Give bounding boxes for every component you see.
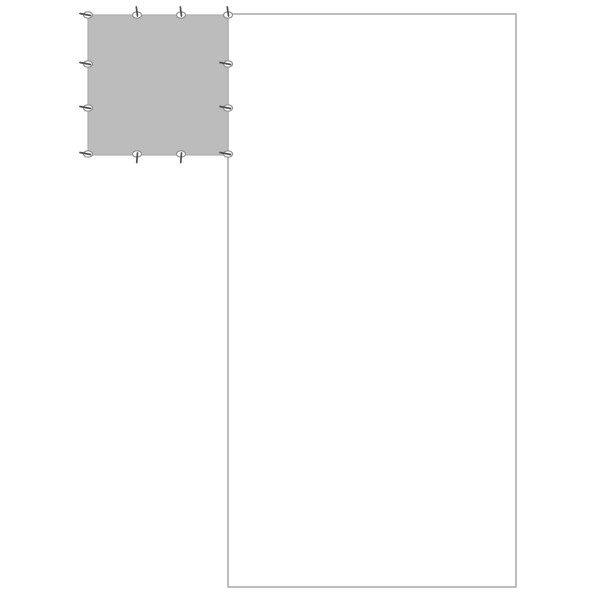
outer-rectangle-shape[interactable]	[228, 14, 516, 587]
pin-needle	[227, 7, 228, 16]
pin-needle	[137, 153, 138, 163]
pin-needle	[136, 7, 137, 16]
gray-square-shape[interactable]	[88, 15, 228, 155]
pin-handle[interactable]	[133, 7, 142, 18]
page-canvas	[0, 0, 600, 600]
pin-handle[interactable]	[133, 151, 142, 163]
pin-handle[interactable]	[177, 151, 186, 163]
pin-handle[interactable]	[80, 12, 93, 18]
diagram-canvas	[0, 0, 600, 600]
pin-handle[interactable]	[177, 7, 186, 18]
pin-handle[interactable]	[80, 61, 93, 67]
pin-handle[interactable]	[80, 151, 93, 157]
pin-needle	[181, 153, 182, 163]
pin-handle[interactable]	[80, 105, 93, 111]
pin-handle[interactable]	[224, 7, 233, 18]
pin-needle	[180, 7, 181, 16]
